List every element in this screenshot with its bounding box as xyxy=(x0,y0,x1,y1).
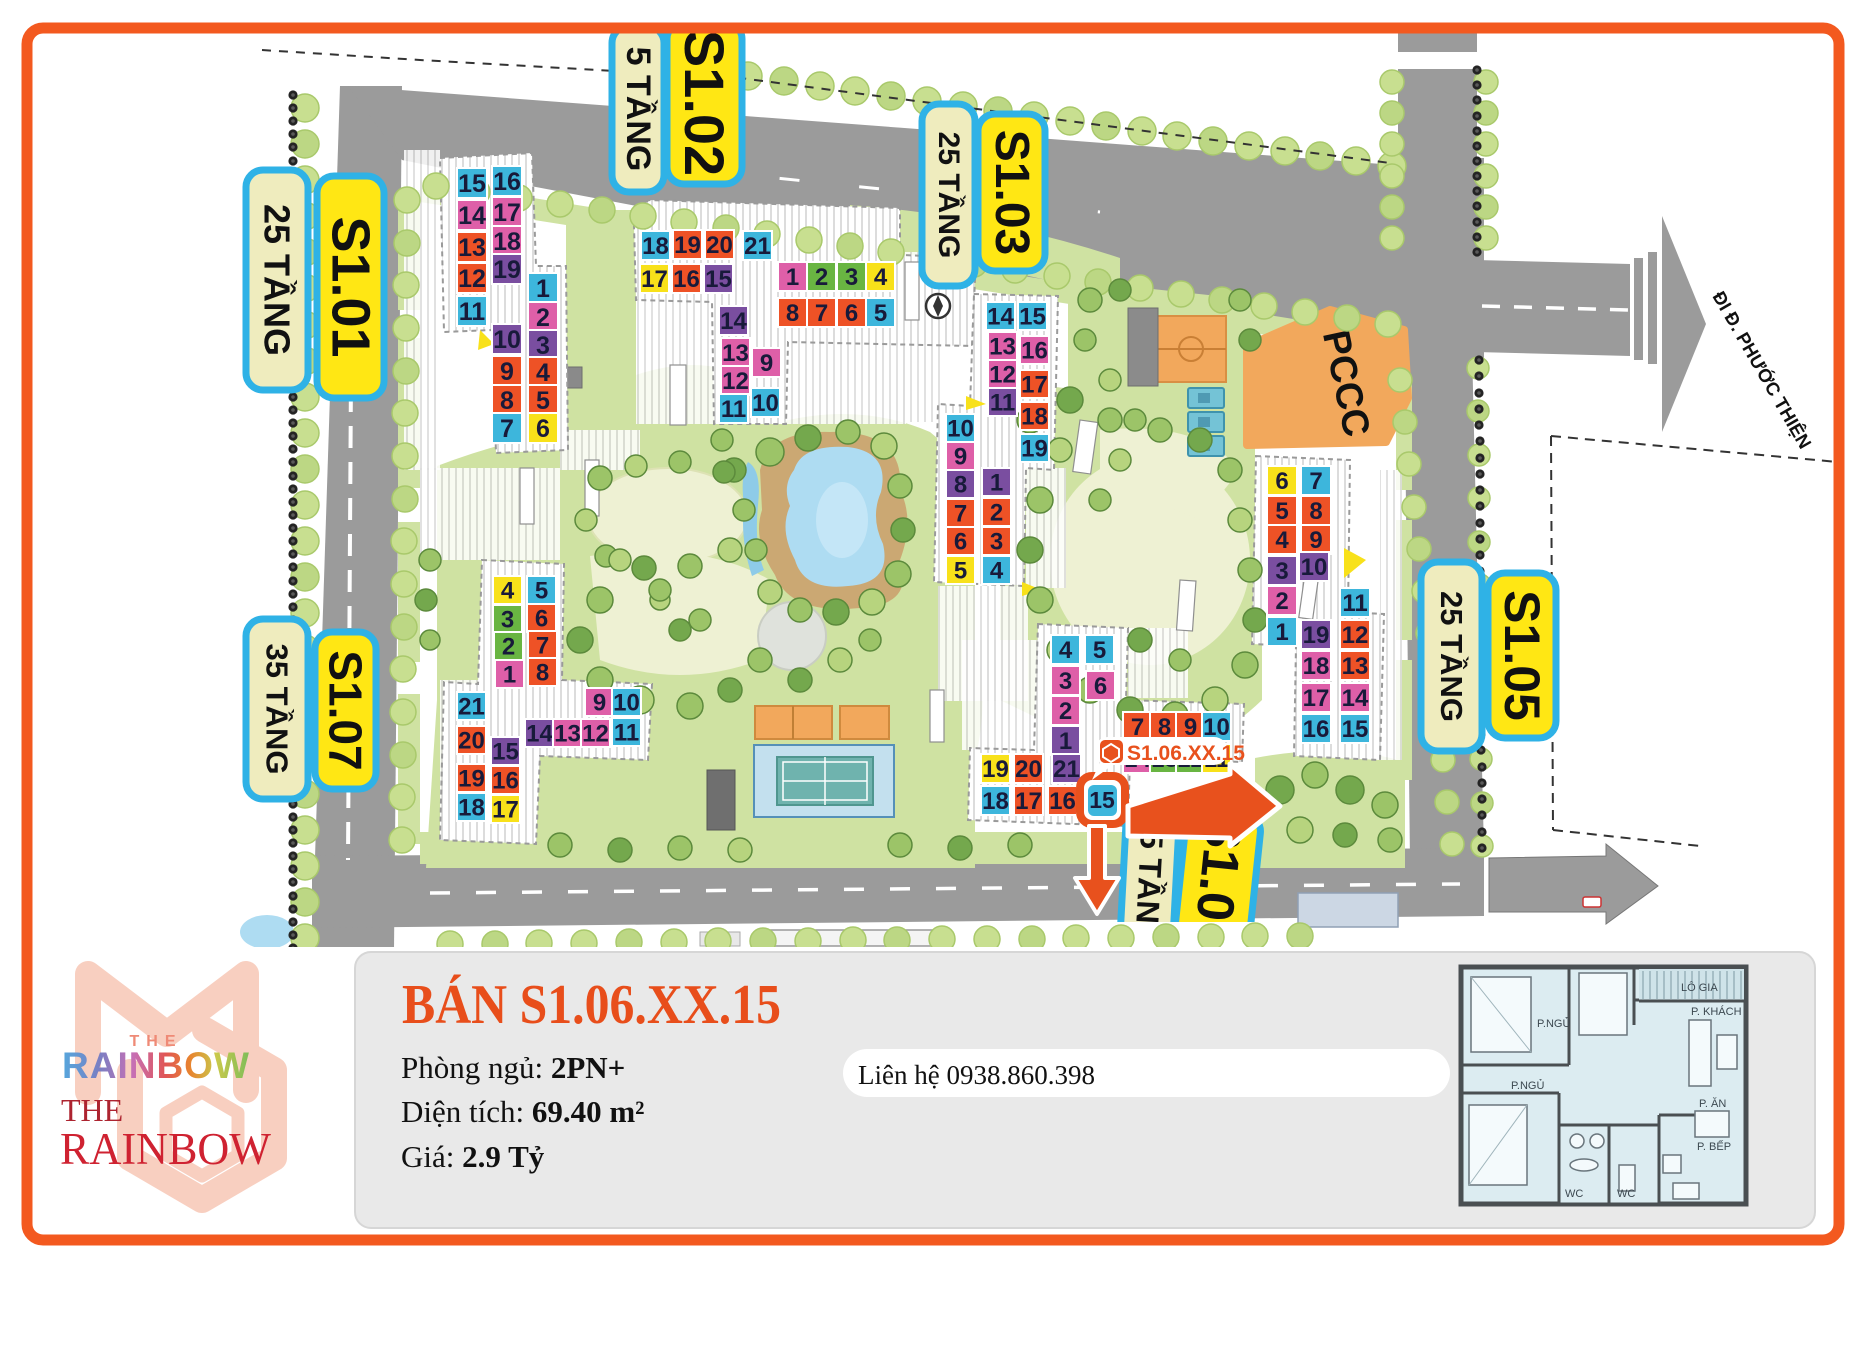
svg-text:11: 11 xyxy=(721,396,746,423)
svg-text:7: 7 xyxy=(1309,468,1322,495)
svg-text:12: 12 xyxy=(1342,622,1369,649)
svg-text:15: 15 xyxy=(458,170,486,198)
svg-text:14: 14 xyxy=(987,304,1014,331)
svg-text:10: 10 xyxy=(1301,554,1328,581)
svg-text:2: 2 xyxy=(1275,588,1288,615)
svg-text:11: 11 xyxy=(459,298,486,326)
svg-text:4: 4 xyxy=(501,578,515,605)
svg-text:LÔ GIA: LÔ GIA xyxy=(1681,981,1718,994)
svg-text:16: 16 xyxy=(493,168,521,196)
svg-text:S1.01: S1.01 xyxy=(321,216,381,357)
svg-text:14: 14 xyxy=(458,202,486,230)
svg-text:5 TẦNG: 5 TẦNG xyxy=(619,47,657,172)
svg-text:5: 5 xyxy=(874,300,887,327)
svg-text:P. KHÁCH: P. KHÁCH xyxy=(1691,1005,1742,1018)
svg-text:35 TẦNG: 35 TẦNG xyxy=(260,644,295,775)
svg-text:2: 2 xyxy=(815,264,828,291)
svg-text:13: 13 xyxy=(554,721,581,748)
svg-text:Liên hệ 0938.860.398: Liên hệ 0938.860.398 xyxy=(858,1060,1095,1090)
svg-text:6: 6 xyxy=(1094,673,1107,700)
svg-text:10: 10 xyxy=(947,416,974,443)
svg-text:6: 6 xyxy=(954,529,967,556)
svg-text:6: 6 xyxy=(536,415,550,443)
svg-text:15: 15 xyxy=(1019,304,1046,331)
svg-text:P.NGỦ: P.NGỦ xyxy=(1511,1079,1544,1092)
svg-text:25 TẦNG: 25 TẦNG xyxy=(1434,591,1469,722)
svg-text:4: 4 xyxy=(1059,637,1073,664)
svg-text:17: 17 xyxy=(492,797,519,824)
svg-text:5: 5 xyxy=(954,558,967,585)
svg-text:18: 18 xyxy=(493,228,521,256)
svg-text:12: 12 xyxy=(722,368,749,395)
svg-text:21: 21 xyxy=(744,233,771,260)
svg-text:19: 19 xyxy=(458,766,485,793)
svg-text:11: 11 xyxy=(990,390,1015,417)
svg-text:3: 3 xyxy=(990,529,1003,556)
svg-text:2: 2 xyxy=(1059,698,1072,725)
svg-text:15: 15 xyxy=(1342,716,1369,743)
svg-text:14: 14 xyxy=(1342,685,1369,712)
svg-text:13: 13 xyxy=(722,340,749,367)
svg-text:6: 6 xyxy=(845,300,858,327)
svg-text:1: 1 xyxy=(1059,728,1072,755)
svg-text:19: 19 xyxy=(1303,622,1330,649)
svg-text:Giá: 2.9 Tỷ: Giá: 2.9 Tỷ xyxy=(401,1139,545,1174)
svg-text:8: 8 xyxy=(500,387,514,415)
svg-text:BÁN S1.06.XX.15: BÁN S1.06.XX.15 xyxy=(402,974,781,1036)
svg-text:21: 21 xyxy=(458,694,485,721)
svg-text:3: 3 xyxy=(845,264,858,291)
svg-text:Diện tích: 69.40 m²: Diện tích: 69.40 m² xyxy=(401,1094,644,1129)
svg-text:20: 20 xyxy=(1015,756,1042,783)
svg-text:7: 7 xyxy=(815,300,828,327)
svg-text:17: 17 xyxy=(493,199,521,227)
svg-text:4: 4 xyxy=(536,359,550,387)
svg-text:9: 9 xyxy=(1309,527,1322,554)
svg-text:WC: WC xyxy=(1617,1188,1635,1200)
svg-text:18: 18 xyxy=(1021,404,1048,431)
svg-text:16: 16 xyxy=(1049,788,1076,815)
svg-text:10: 10 xyxy=(493,326,521,354)
svg-text:P. BẾP: P. BẾP xyxy=(1697,1140,1731,1153)
svg-text:21: 21 xyxy=(1053,756,1080,783)
svg-text:10: 10 xyxy=(752,390,779,417)
svg-text:13: 13 xyxy=(989,334,1016,361)
svg-text:25 TẦNG: 25 TẦNG xyxy=(257,204,298,356)
svg-text:P.NGỦ: P.NGỦ xyxy=(1537,1017,1570,1030)
svg-text:2: 2 xyxy=(990,500,1003,527)
svg-text:RAINBOW: RAINBOW xyxy=(60,1124,272,1174)
svg-text:9: 9 xyxy=(500,358,514,386)
svg-text:1: 1 xyxy=(536,275,550,303)
svg-text:18: 18 xyxy=(982,788,1009,815)
svg-text:17: 17 xyxy=(1303,685,1330,712)
svg-text:6: 6 xyxy=(1275,468,1288,495)
svg-text:3: 3 xyxy=(1275,558,1288,585)
svg-text:9: 9 xyxy=(760,350,773,377)
svg-text:8: 8 xyxy=(1309,498,1322,525)
svg-text:12: 12 xyxy=(989,362,1016,389)
svg-text:5: 5 xyxy=(1093,637,1106,664)
svg-text:Phòng ngủ: 2PN+: Phòng ngủ: 2PN+ xyxy=(401,1050,625,1085)
svg-text:14: 14 xyxy=(526,721,553,748)
svg-text:RAINBOW: RAINBOW xyxy=(62,1045,250,1086)
svg-text:8: 8 xyxy=(954,472,967,499)
svg-text:3: 3 xyxy=(1059,668,1072,695)
svg-text:11: 11 xyxy=(1342,590,1367,617)
svg-text:16: 16 xyxy=(1021,338,1048,365)
svg-text:1: 1 xyxy=(503,662,516,689)
svg-text:17: 17 xyxy=(1015,788,1042,815)
svg-text:18: 18 xyxy=(1303,653,1330,680)
svg-text:9: 9 xyxy=(593,690,606,717)
svg-text:20: 20 xyxy=(458,728,485,755)
svg-text:20: 20 xyxy=(706,232,733,259)
svg-text:19: 19 xyxy=(674,232,701,259)
svg-text:2: 2 xyxy=(502,634,515,661)
svg-text:13: 13 xyxy=(1342,653,1369,680)
svg-text:2: 2 xyxy=(536,304,550,332)
svg-text:S1.05: S1.05 xyxy=(1494,590,1550,721)
svg-text:13: 13 xyxy=(458,234,486,262)
svg-text:16: 16 xyxy=(492,768,519,795)
svg-text:19: 19 xyxy=(493,256,521,284)
svg-text:1: 1 xyxy=(786,264,799,291)
svg-text:14: 14 xyxy=(720,308,747,335)
svg-text:15: 15 xyxy=(705,266,732,293)
svg-text:4: 4 xyxy=(990,558,1004,585)
svg-text:S1.03: S1.03 xyxy=(985,130,1038,255)
svg-text:4: 4 xyxy=(874,264,888,291)
svg-text:7: 7 xyxy=(954,501,967,528)
svg-text:P. ĂN: P. ĂN xyxy=(1699,1097,1726,1110)
svg-text:15: 15 xyxy=(1089,787,1115,813)
svg-text:5: 5 xyxy=(536,387,550,415)
svg-text:7: 7 xyxy=(536,633,549,660)
svg-text:S1.02: S1.02 xyxy=(673,30,736,176)
svg-text:3: 3 xyxy=(501,607,514,634)
svg-text:9: 9 xyxy=(954,444,967,471)
svg-text:8: 8 xyxy=(786,300,799,327)
svg-text:16: 16 xyxy=(673,266,700,293)
svg-text:7: 7 xyxy=(500,415,514,443)
svg-text:WC: WC xyxy=(1565,1188,1583,1200)
svg-text:18: 18 xyxy=(642,233,669,260)
svg-text:17: 17 xyxy=(641,266,668,293)
svg-text:18: 18 xyxy=(458,795,485,822)
svg-text:25 TẦNG: 25 TẦNG xyxy=(932,132,966,259)
svg-text:1: 1 xyxy=(990,470,1003,497)
svg-text:5: 5 xyxy=(1275,498,1288,525)
svg-text:10: 10 xyxy=(613,690,640,717)
svg-text:6: 6 xyxy=(535,606,548,633)
svg-text:12: 12 xyxy=(458,265,486,293)
svg-text:S1.06.XX.15: S1.06.XX.15 xyxy=(1127,742,1245,765)
svg-text:1: 1 xyxy=(1275,619,1288,646)
svg-text:11: 11 xyxy=(614,720,639,747)
svg-text:THE: THE xyxy=(61,1092,123,1128)
svg-text:8: 8 xyxy=(536,660,549,687)
svg-text:5: 5 xyxy=(535,578,548,605)
svg-text:3: 3 xyxy=(536,332,550,360)
svg-text:17: 17 xyxy=(1021,372,1048,399)
svg-text:19: 19 xyxy=(1021,436,1048,463)
svg-text:19: 19 xyxy=(982,756,1009,783)
svg-text:12: 12 xyxy=(582,721,609,748)
svg-text:S1.07: S1.07 xyxy=(320,650,372,770)
svg-text:4: 4 xyxy=(1275,527,1289,554)
svg-text:15: 15 xyxy=(492,739,519,766)
svg-text:16: 16 xyxy=(1303,716,1330,743)
